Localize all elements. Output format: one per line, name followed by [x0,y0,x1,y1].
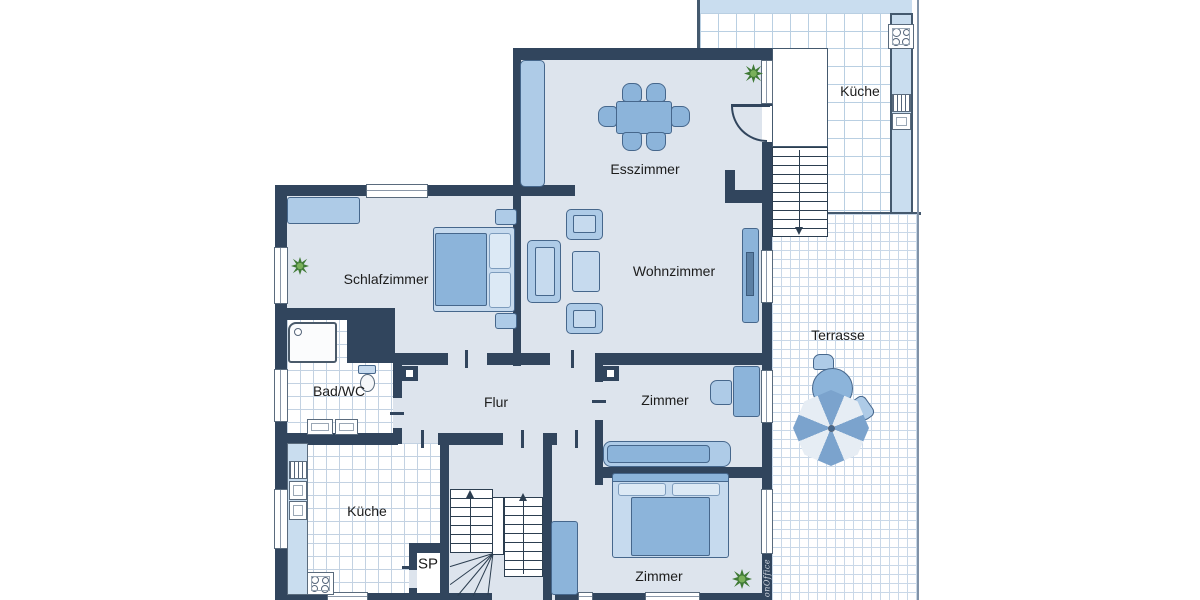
wall-bottom-d [593,593,645,600]
cooktop-icon [888,24,914,49]
desk-chair [710,380,732,405]
stair-arrow-up-icon [519,493,527,501]
dining-chair [598,106,617,127]
dining-chair [622,132,642,151]
bed-pillow [489,233,511,269]
plant-icon [744,64,763,83]
terrace-top-tiles-a [700,13,890,48]
wall-bad-right-a [393,363,402,398]
daybed-mattress [607,445,710,463]
door-tick [521,430,524,448]
room-label-sp: SP [418,556,438,573]
room-label-kueche-innen: Küche [347,503,387,519]
door-tick [402,566,416,569]
stair-direction-line [799,150,800,228]
window [274,247,288,304]
terrace-edge-right [917,0,919,600]
stair-direction-line [470,497,471,553]
wall-flur-top-a [395,353,448,365]
window [578,592,593,600]
sideboard [520,60,545,187]
stair-stringer [492,497,504,555]
wall-sp-top [409,543,448,553]
door-tick [592,400,606,403]
wall-esszimmer-bottom-right [725,190,772,203]
plant-icon [732,569,752,589]
stairs-flight-left [450,489,493,553]
sink [307,419,333,435]
wardrobe [551,521,578,595]
burner-icon [903,29,910,36]
stair-arrow-up-icon [466,490,474,498]
bed-pillow [489,272,511,308]
outdoor-sink-icon [892,113,911,130]
window [366,184,428,198]
window [274,489,288,549]
parasol-hub-icon [828,425,835,432]
wall-zimmer-left-a [595,365,603,382]
nightstand [495,313,517,329]
wall-schlafzimmer-bottom [275,308,353,320]
burner-icon [311,576,319,584]
wall-flur-top-b [487,353,550,365]
vent-icon [289,461,307,479]
burner-icon [892,38,900,46]
door-tick [421,430,424,448]
window [761,489,773,554]
sink [335,419,358,435]
bed-pillow [618,483,666,496]
dining-chair [671,106,690,127]
burner-icon [902,38,910,46]
oven-icon [289,481,307,500]
coffee-table [572,251,600,292]
stair-arrow-down-icon [795,227,803,235]
burner-icon [311,585,318,592]
door-tick [465,350,468,368]
bed-blanket [435,233,487,306]
chimney-core [607,370,614,377]
dining-chair [622,83,642,102]
armchair-seat [573,310,596,328]
window [274,369,288,422]
door-tick [390,412,404,415]
chimney-core [406,370,413,377]
dining-table [616,101,672,134]
burner-icon [321,585,329,593]
oven-icon [289,501,307,520]
wall-flur-top-c [595,353,772,365]
wall-bottom-e [700,593,772,600]
bed-blanket [631,497,710,556]
bed-headboard [612,473,729,482]
wall-stub [725,170,735,191]
room-label-wohnzimmer: Wohnzimmer [633,263,715,279]
door-tick [571,350,574,368]
room-label-schlafzimmer: Schlafzimmer [344,271,429,287]
armchair-seat [573,215,596,233]
watermark-onoffice: onOffice [763,559,772,597]
dining-chair [646,132,666,151]
room-label-flur: Flur [484,394,508,410]
room-label-bad-wc: Bad/WC [313,383,365,399]
plant-icon [291,257,309,275]
grill-icon [892,94,911,112]
window [761,250,773,303]
shower-drain-icon [294,328,302,336]
dining-chair [646,83,666,102]
floor-kueche-tiles [287,443,448,543]
room-label-zimmer-unten: Zimmer [635,568,682,584]
room-label-zimmer-mitte: Zimmer [641,392,688,408]
room-label-esszimmer: Esszimmer [610,161,679,177]
window [645,592,700,600]
room-label-terrasse: Terrasse [811,327,865,343]
stove-icon [307,572,334,595]
sofa-seat [535,247,555,296]
exterior-stairs [772,147,828,237]
toilet-tank [358,365,376,374]
door-tick [575,430,578,448]
burner-icon [322,577,329,584]
bed-pillow [672,483,720,496]
wall-block-bad [347,308,395,363]
burner-icon [892,28,901,37]
stair-direction-line [523,500,524,574]
desk [733,366,760,417]
nightstand [495,209,517,225]
wall-stairwell-left [440,443,449,600]
room-label-kueche-terrasse: Küche [840,83,880,99]
tv-screen [746,252,754,296]
wall-top-outer [513,48,772,60]
exterior-landing [772,48,828,147]
window [761,370,773,423]
dresser [287,197,360,224]
floorplan-canvas: Esszimmer Schlafzimmer Wohnzimmer Bad/WC… [0,0,1200,600]
